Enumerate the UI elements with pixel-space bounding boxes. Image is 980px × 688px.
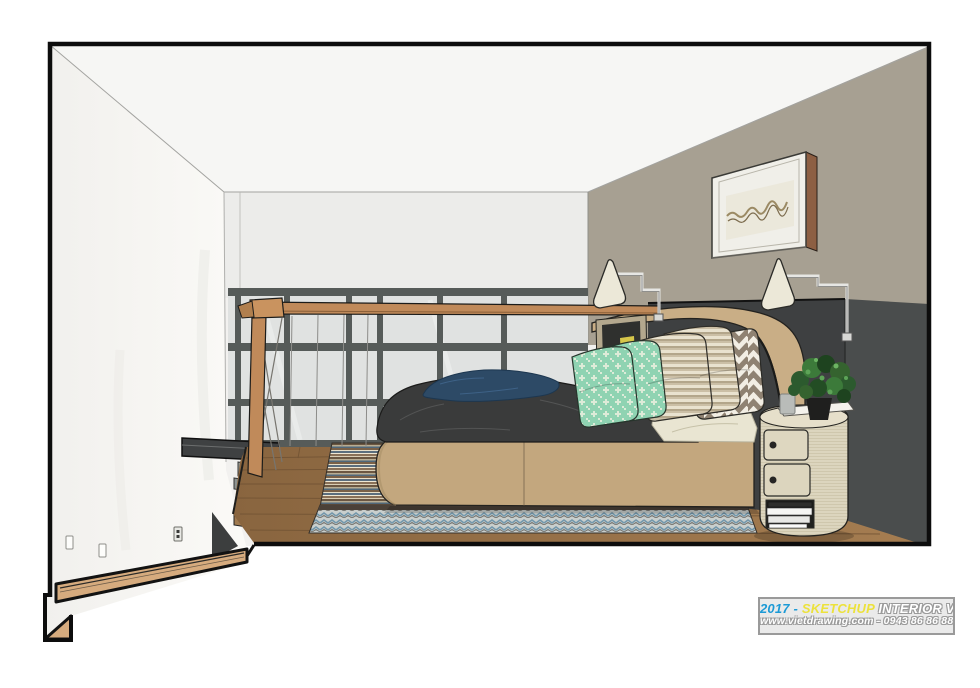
cup: [780, 394, 795, 414]
switch-slot: [177, 535, 180, 538]
shelf-books: [767, 502, 812, 528]
watermark-website-line: www.vietdrawing.com - 0943 86 86 88: [760, 615, 953, 627]
sketchup-render-viewport: 2017 - SKETCHUP INTERIOR VOL.6 www.vietd…: [0, 0, 980, 688]
watermark-brand: SKETCHUP: [802, 601, 875, 616]
watermark-series: INTERIOR VOL.6: [878, 601, 955, 616]
bed-base: [376, 439, 754, 507]
light-switch: [174, 527, 182, 541]
watermark-badge: 2017 - SKETCHUP INTERIOR VOL.6 www.vietd…: [758, 597, 955, 635]
lamp-mount: [654, 314, 663, 321]
outlet: [66, 536, 73, 549]
drawer-knob: [770, 477, 777, 484]
scene-drawing: [0, 0, 980, 688]
railing-corner-cap: [250, 298, 284, 318]
watermark-year: 2017 -: [760, 601, 798, 616]
outlet: [99, 544, 106, 557]
drawer-knob: [770, 442, 777, 449]
watermark-title-line: 2017 - SKETCHUP INTERIOR VOL.6: [760, 601, 953, 616]
mint-pillow: [572, 347, 638, 427]
lamp-mount: [842, 333, 852, 341]
plant-pot: [806, 398, 832, 420]
back-wall-bulkhead: [224, 192, 588, 298]
frame-side: [806, 152, 817, 251]
bed-shadow: [384, 506, 760, 514]
switch-slot: [177, 530, 180, 533]
right-cut-wall: [845, 299, 929, 544]
